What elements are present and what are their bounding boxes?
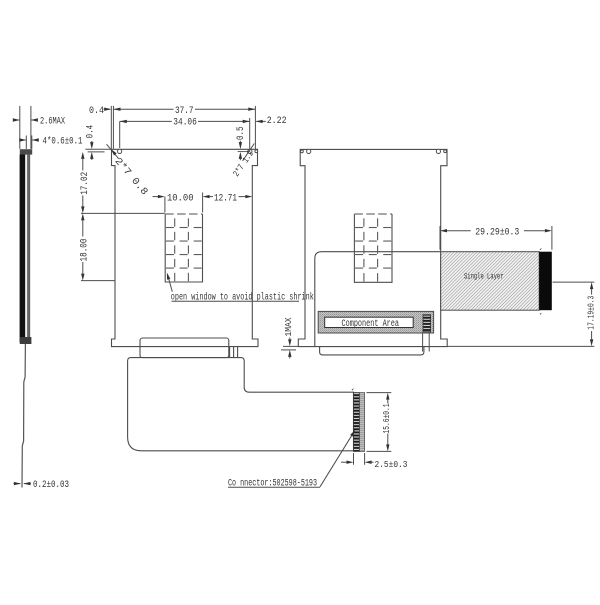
svg-text:0.2±0.03: 0.2±0.03: [33, 479, 69, 491]
svg-text:4*0.6±0.1: 4*0.6±0.1: [43, 135, 83, 147]
svg-text:17.19±0.3: 17.19±0.3: [585, 296, 596, 330]
svg-text:2.6MAX: 2.6MAX: [40, 115, 65, 127]
svg-text:0.5: 0.5: [235, 126, 247, 140]
svg-text:15.6±0.1: 15.6±0.1: [381, 403, 392, 433]
svg-text:Single Layer: Single Layer: [464, 273, 504, 282]
svg-text:1MAX: 1MAX: [283, 317, 294, 336]
svg-text:12.71: 12.71: [214, 192, 237, 204]
svg-text:18.00: 18.00: [78, 239, 90, 262]
svg-text:2.5±0.3: 2.5±0.3: [375, 459, 408, 470]
svg-text:2.22: 2.22: [267, 115, 287, 127]
svg-text:29.29±0.3: 29.29±0.3: [475, 226, 519, 238]
svg-text:34.06: 34.06: [173, 117, 197, 129]
svg-text:17.02: 17.02: [79, 172, 91, 195]
svg-text:Co nnector:502598-5193: Co nnector:502598-5193: [228, 479, 317, 490]
svg-text:Component Area: Component Area: [342, 319, 400, 330]
svg-text:10.00: 10.00: [167, 192, 194, 204]
svg-text:37.7: 37.7: [175, 105, 194, 117]
svg-text:0.4: 0.4: [85, 125, 97, 139]
svg-text:0.4: 0.4: [89, 105, 104, 117]
